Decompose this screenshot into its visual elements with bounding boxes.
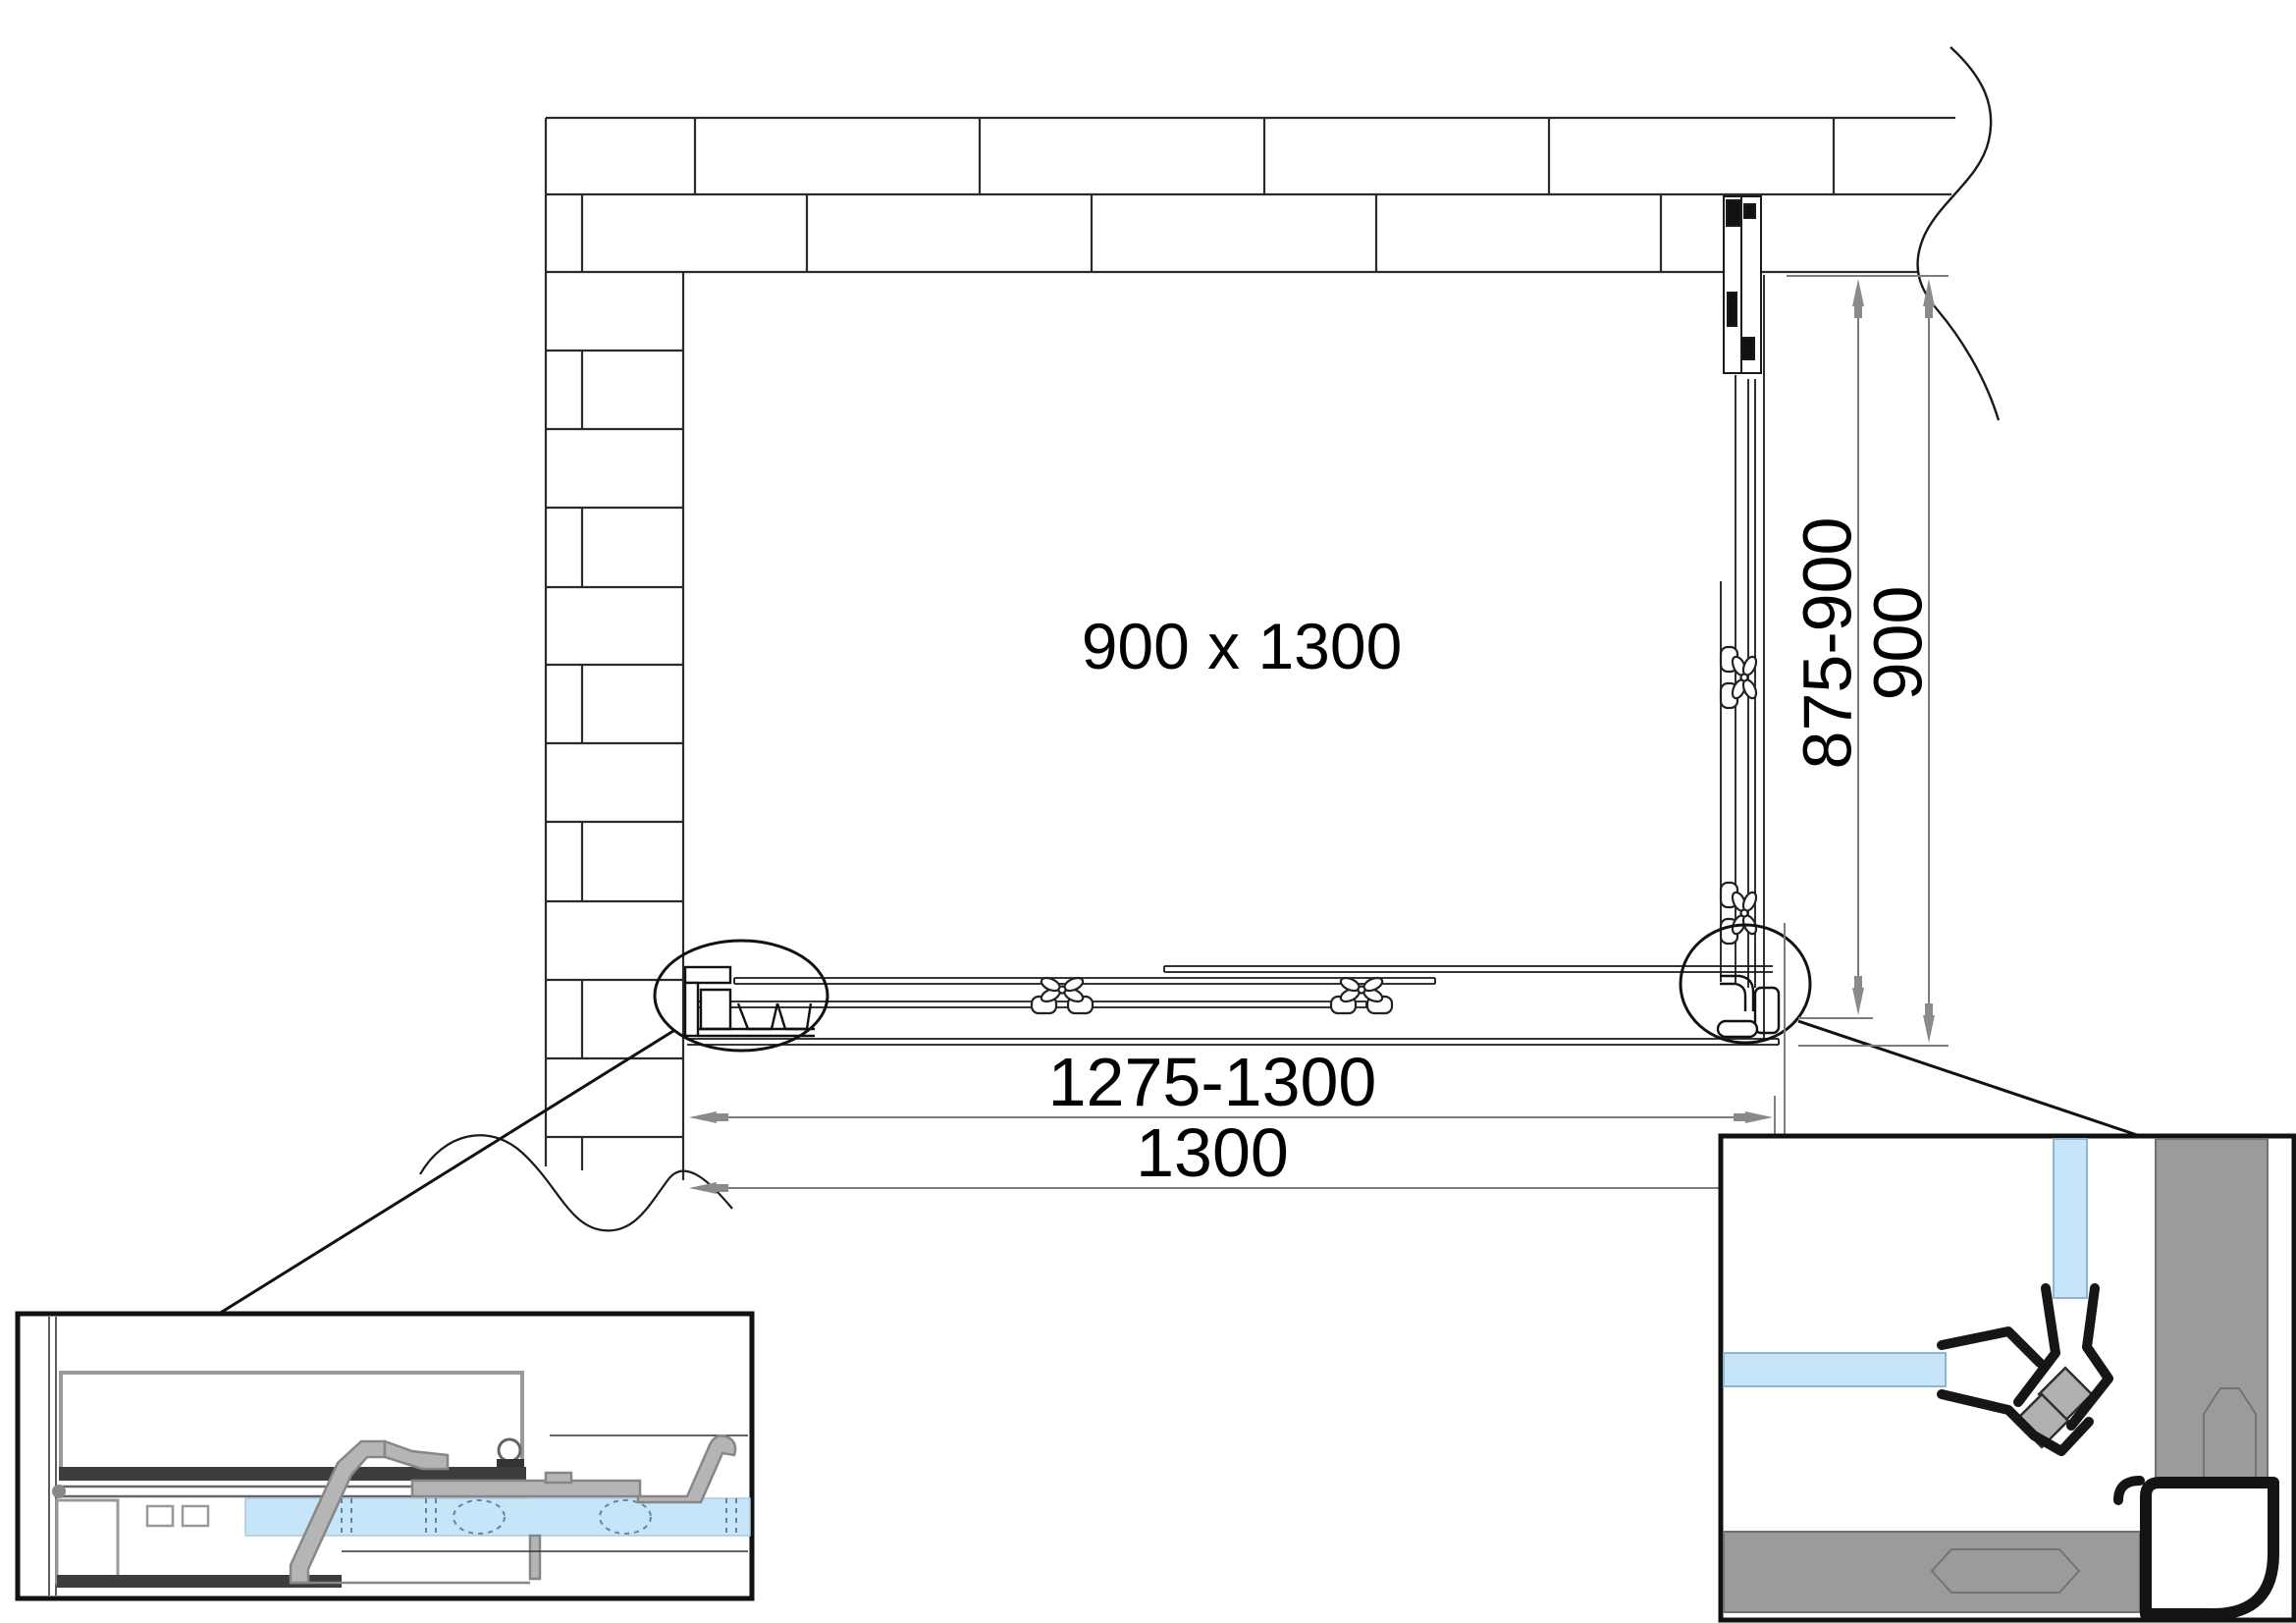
glass-horizontal xyxy=(1724,1353,1946,1386)
detail-inset-bottom-rail xyxy=(18,1314,752,1598)
corner-cap-profile xyxy=(2146,1483,2273,1614)
glass-vertical xyxy=(2054,1139,2087,1298)
dim-label-depth-nominal: 900 xyxy=(1860,586,1937,701)
glass-clamp-icon xyxy=(1721,647,1759,708)
dim-label-width-nominal: 1300 xyxy=(1136,1114,1289,1191)
side-panel-wall-profile xyxy=(1724,196,1761,373)
technical-drawing-page: 900 x 1300 875-900 900 1275-1300 1300 xyxy=(0,0,2296,1623)
detail-leader-left xyxy=(219,1031,673,1314)
dim-label-width-adjustable: 1275-1300 xyxy=(1048,1044,1377,1120)
glass-clamp-icon xyxy=(1721,883,1759,944)
detail-leader-right xyxy=(1798,1021,2140,1136)
tray-frame-vertical xyxy=(2156,1139,2268,1485)
shower-enclosure-plan-drawing: 900 x 1300 875-900 900 1275-1300 1300 xyxy=(0,0,2296,1623)
wall-break-line-bottom-left xyxy=(420,1135,732,1230)
detail-inset-corner-seal xyxy=(1721,1136,2294,1620)
dim-label-depth-adjustable: 875-900 xyxy=(1789,517,1866,770)
sliding-door-bottom-rail xyxy=(687,966,1779,1045)
detail-circle-left xyxy=(655,941,828,1051)
product-size-label: 900 x 1300 xyxy=(1082,610,1403,682)
